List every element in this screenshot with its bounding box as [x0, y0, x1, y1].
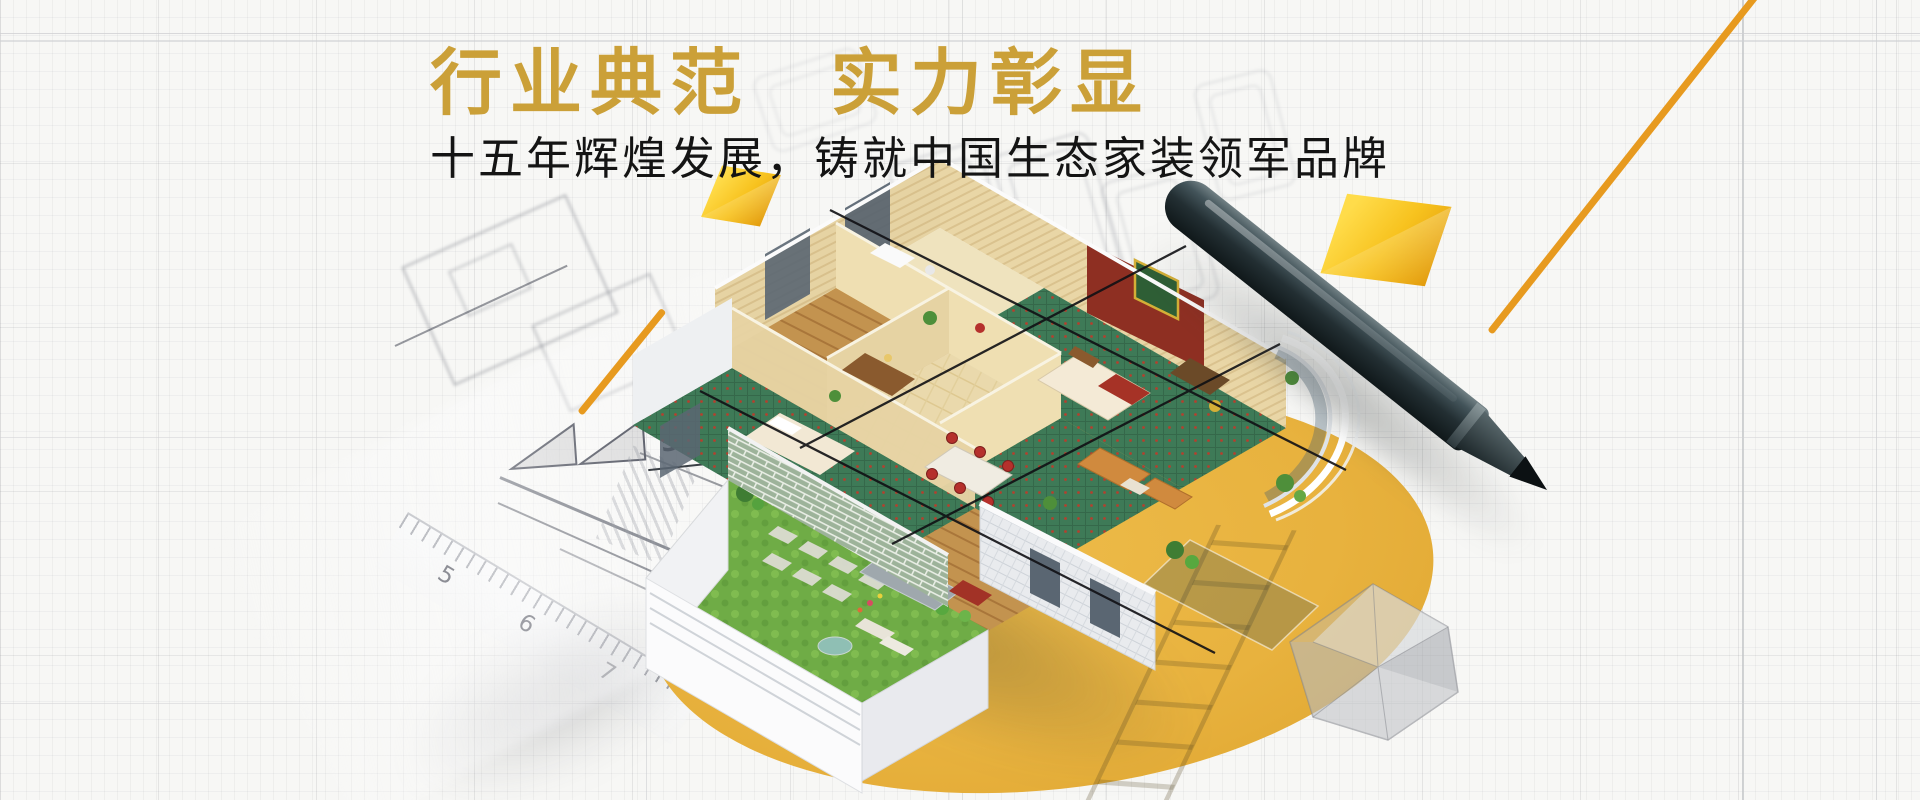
grid-accent-line — [1742, 0, 1744, 800]
banner-stage: 5 6 7 580 7 — [0, 0, 1920, 800]
grid-accent-line — [1876, 0, 1877, 800]
banner-title: 行业典范 实力彰显 — [430, 24, 1150, 129]
banner-subtitle: 十五年辉煌发展，铸就中国生态家装领军品牌 — [430, 122, 1390, 187]
wireframe-polyhedron — [1288, 582, 1463, 747]
orange-diagonal-line — [1487, 0, 1759, 335]
